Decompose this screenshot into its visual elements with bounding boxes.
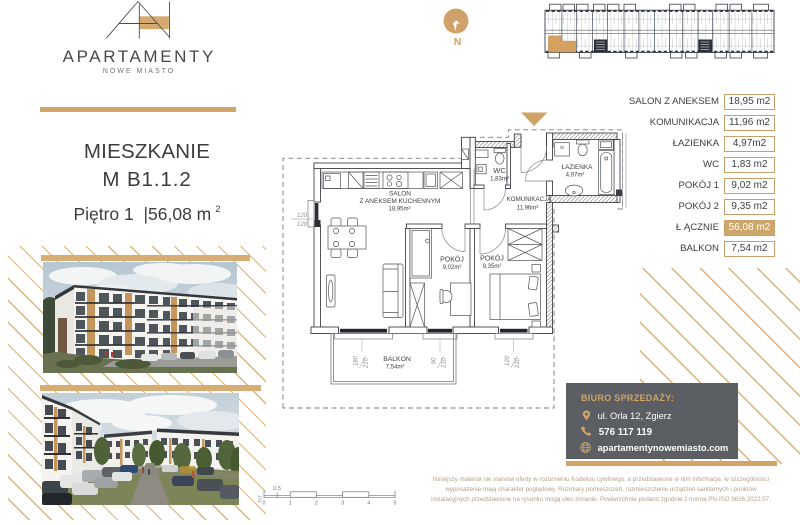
svg-text:1,83m²: 1,83m²: [490, 177, 509, 183]
svg-text:KOMUNIKACJA: KOMUNIKACJA: [507, 196, 553, 203]
svg-text:7,54m²: 7,54m²: [386, 365, 405, 371]
svg-text:0,5: 0,5: [273, 486, 281, 492]
svg-text:210: 210: [364, 357, 370, 369]
svg-text:5: 5: [393, 501, 396, 507]
svg-text:3: 3: [341, 501, 344, 507]
svg-text:11,96m²: 11,96m²: [517, 206, 539, 212]
svg-text:120: 120: [297, 222, 308, 228]
svg-text:9,02m²: 9,02m²: [443, 265, 462, 271]
svg-text:180: 180: [354, 355, 360, 366]
svg-text:90: 90: [432, 357, 438, 364]
svg-text:4: 4: [367, 501, 370, 507]
svg-text:120: 120: [505, 355, 511, 366]
svg-text:Z ANEKSEM KUCHENNYM: Z ANEKSEM KUCHENNYM: [360, 198, 441, 205]
svg-text:1: 1: [289, 501, 292, 507]
svg-text:4,97m²: 4,97m²: [566, 173, 585, 179]
svg-text:9,35m²: 9,35m²: [483, 264, 502, 270]
svg-text:120: 120: [297, 213, 308, 219]
svg-text:210: 210: [442, 357, 448, 369]
svg-text:POKÓJ: POKÓJ: [480, 254, 504, 263]
svg-text:SALON: SALON: [389, 191, 411, 198]
svg-text:N: N: [454, 36, 462, 48]
svg-text:WC: WC: [493, 166, 506, 175]
svg-text:w: w: [560, 145, 564, 151]
svg-text:ŁAZIENKA: ŁAZIENKA: [562, 164, 594, 171]
svg-text:210: 210: [515, 357, 521, 369]
svg-text:POKÓJ: POKÓJ: [440, 255, 464, 264]
svg-text:18,95m²: 18,95m²: [388, 207, 410, 213]
svg-text:BALKON: BALKON: [383, 356, 411, 363]
svg-text:0: 0: [262, 501, 265, 507]
svg-text:2: 2: [315, 501, 318, 507]
